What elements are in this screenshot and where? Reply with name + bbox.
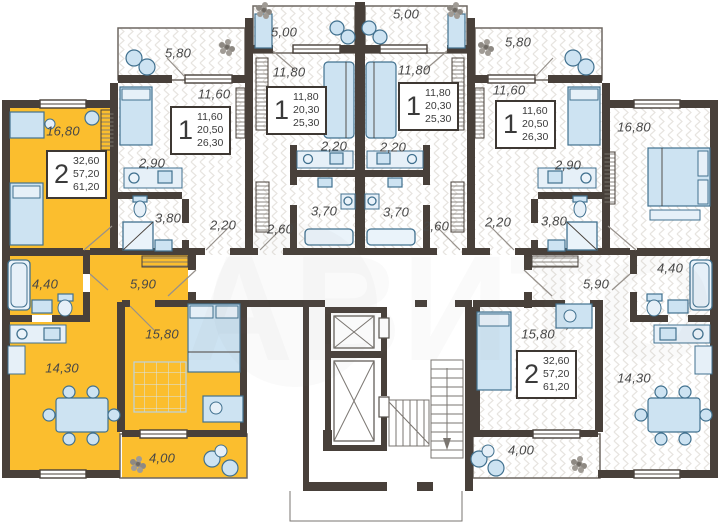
room-label: 2,20 (210, 218, 236, 233)
room-label: 2,90 (139, 156, 165, 171)
room-label: 3,80 (541, 214, 567, 229)
room-label: 5,90 (130, 277, 156, 292)
room-label: 14,30 (45, 361, 79, 376)
rooms-count: 1 (406, 93, 421, 120)
total-area: 61,20 (543, 381, 569, 394)
room-label: 15,80 (521, 327, 555, 342)
apartment-stats-box: 1 11,6020,5026,30 (495, 100, 556, 149)
living-area: 11,80 (425, 87, 451, 100)
room-label: 2,20 (485, 215, 511, 230)
living-area: 32,60 (73, 155, 99, 168)
room-label: 11,60 (493, 83, 526, 98)
usable-area: 20,30 (293, 104, 319, 117)
room-label: 5,00 (271, 25, 297, 40)
usable-area: 20,50 (522, 118, 548, 131)
room-label: 5,00 (393, 7, 419, 22)
apartment-stats-box: 2 32,6057,2061,20 (516, 350, 577, 399)
usable-area: 57,20 (543, 368, 569, 381)
living-area: 32,60 (543, 355, 569, 368)
total-area: 26,30 (522, 131, 548, 144)
room-label: 16,80 (617, 120, 651, 135)
room-label: 4,00 (508, 443, 534, 458)
total-area: 61,20 (73, 181, 99, 194)
room-label: 5,80 (505, 35, 531, 50)
floor-plan-drawing: АВИТО (0, 0, 720, 528)
rooms-count: 2 (524, 361, 539, 388)
room-label: 2,20 (321, 139, 347, 154)
usable-area: 20,50 (197, 124, 223, 137)
total-area: 25,30 (425, 113, 451, 126)
usable-area: 20,30 (425, 100, 451, 113)
rooms-count: 1 (274, 97, 289, 124)
room-label: 2,90 (555, 158, 581, 173)
room-label: 16,80 (46, 124, 80, 139)
room-label: 4,40 (657, 261, 683, 276)
total-area: 26,30 (197, 137, 223, 150)
room-label: 3,70 (383, 205, 409, 220)
floor-plan-image: АВИТО 16,80 4,40 5,90 14,30 15,80 4,00 5… (0, 0, 720, 528)
apartment-stats-box: 1 11,6020,5026,30 (170, 106, 231, 155)
apartment-stats-box: 1 11,8020,3025,30 (398, 82, 459, 131)
apartment-stats-box: 2 32,6057,2061,20 (46, 150, 107, 199)
room-label: 11,80 (398, 63, 431, 78)
watermark: АВИТО (185, 223, 714, 392)
living-area: 11,60 (197, 111, 223, 124)
living-area: 11,60 (522, 105, 548, 118)
room-label: 2,20 (380, 140, 406, 155)
watermark-text: АВИТО (185, 224, 714, 392)
room-label: 5,80 (165, 46, 191, 61)
room-label: 4,00 (149, 451, 175, 466)
rooms-count: 1 (178, 117, 193, 144)
living-area: 11,80 (293, 91, 319, 104)
room-label: 2,60 (267, 222, 293, 237)
rooms-count: 1 (503, 111, 518, 138)
usable-area: 57,20 (73, 168, 99, 181)
room-label: 11,60 (198, 87, 231, 102)
room-label: 11,80 (273, 65, 306, 80)
total-area: 25,30 (293, 117, 319, 130)
room-label: 14,30 (617, 371, 651, 386)
rooms-count: 2 (54, 161, 69, 188)
apartment-stats-box: 1 11,8020,3025,30 (266, 86, 327, 135)
room-label: 15,80 (145, 327, 179, 342)
room-label: 3,80 (155, 211, 181, 226)
room-label: 4,40 (32, 277, 58, 292)
room-label: 3,70 (311, 204, 337, 219)
room-label: 2,60 (423, 219, 449, 234)
room-label: 5,90 (583, 277, 609, 292)
